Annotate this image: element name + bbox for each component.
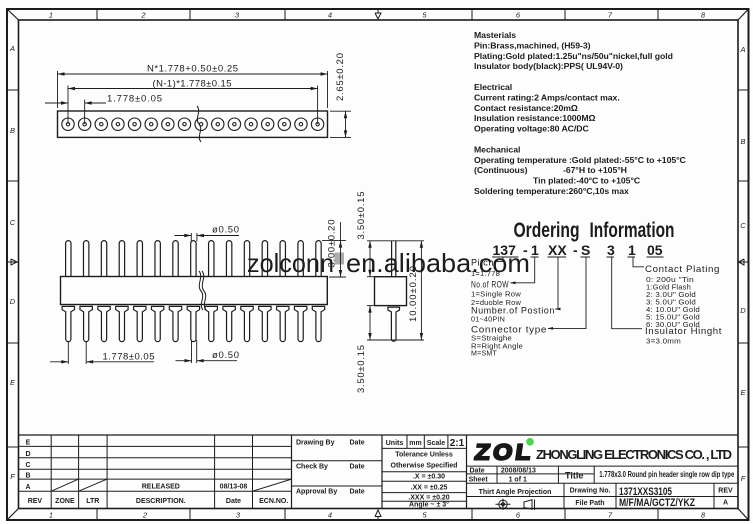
svg-text:2: 2 [142,511,148,520]
svg-text:2.65±0.20: 2.65±0.20 [335,53,346,101]
svg-text:1.778±0.05: 1.778±0.05 [103,352,155,363]
svg-text:3.50±0.15: 3.50±0.15 [356,345,367,393]
svg-text:Date: Date [350,489,365,496]
svg-text:A: A [9,44,15,53]
svg-text:B: B [10,126,15,135]
svg-text:3=3.0mm: 3=3.0mm [646,337,681,346]
svg-text:Tolerance Unless: Tolerance Unless [395,452,453,459]
svg-text:ø0.50: ø0.50 [212,225,239,236]
svg-text:1: 1 [49,511,53,520]
svg-text:1.778x3.0 Round pin header sin: 1.778x3.0 Round pin header single row di… [599,470,734,479]
svg-text:Operating temperature :Gold pl: Operating temperature :Gold plated:-55°C… [474,155,687,165]
svg-text:.X = ±0.30: .X = ±0.30 [413,474,445,481]
svg-text:-67°H to +105°H: -67°H to +105°H [563,165,627,175]
svg-text:(Continuous): (Continuous) [474,165,528,175]
svg-text:XX: XX [548,242,567,258]
svg-text:4: 4 [328,11,332,20]
svg-text:C: C [740,221,746,230]
svg-text:3.50±0.15: 3.50±0.15 [356,192,367,240]
svg-text:Electrical: Electrical [474,82,512,92]
svg-text:ZHONGLING ELECTRONICS CO. , LT: ZHONGLING ELECTRONICS CO. , LTD [536,447,732,462]
svg-text:Approval By: Approval By [296,489,337,496]
svg-text:ZONE: ZONE [55,498,75,505]
svg-text:File Path: File Path [575,500,604,507]
svg-text:Pitch: Pitch [471,258,494,269]
svg-text:.XXX = ±0.20: .XXX = ±0.20 [408,494,450,501]
svg-text:1=1.778: 1=1.778 [471,269,500,278]
svg-text:Date: Date [350,464,365,471]
svg-text:Ordering: Ordering [514,219,580,242]
svg-text:Current rating:2 Amps/contact: Current rating:2 Amps/contact max. [474,92,620,102]
svg-text:C: C [25,462,30,469]
svg-text:1.778±0.05: 1.778±0.05 [107,94,162,105]
svg-text:Check By: Check By [296,464,328,471]
svg-text:E: E [26,440,31,447]
svg-text:F: F [10,472,15,481]
svg-text:Contact Plating: Contact Plating [645,264,720,275]
svg-text:Date: Date [470,468,485,475]
svg-text:A: A [25,484,30,491]
svg-text:2:1: 2:1 [450,438,465,449]
svg-text:1: 1 [628,242,636,258]
svg-text:F: F [741,474,746,483]
svg-text:Masterials: Masterials [474,30,516,40]
svg-text:D: D [25,451,30,458]
svg-text:C: C [10,218,16,227]
svg-text:Operating voltage:80 AC/DC: Operating voltage:80 AC/DC [474,124,589,134]
svg-text:B: B [25,473,30,480]
svg-text:Thirt Angle Projection: Thirt Angle Projection [479,489,552,496]
svg-text:N*1.778+0.50±0.25: N*1.778+0.50±0.25 [147,64,238,75]
svg-text:M/F/MA/GCTZ/YKZ: M/F/MA/GCTZ/YKZ [619,497,695,509]
svg-text:Plating:Gold plated:1.25u"ns/5: Plating:Gold plated:1.25u"ns/50u"nickel,… [474,51,673,61]
svg-text:S: S [581,242,590,258]
svg-text:Soldering temperature:260°C,10: Soldering temperature:260°C,10s max [474,186,629,196]
svg-text:Scale: Scale [427,440,445,447]
svg-text:4: 4 [328,511,332,520]
svg-text:Title: Title [565,471,583,481]
svg-text:ECN.NO.: ECN.NO. [259,498,288,505]
svg-text:3: 3 [607,242,615,258]
svg-text:Drawing By: Drawing By [296,440,335,447]
svg-text:01~40PIN: 01~40PIN [471,315,505,324]
svg-text:A: A [739,45,745,54]
svg-text:05: 05 [647,242,663,258]
svg-text:REV: REV [28,498,43,505]
svg-text:.XX = ±0.25: .XX = ±0.25 [411,485,448,492]
svg-text:ZOL: ZOL [473,440,535,465]
svg-text:Angle ~ ± 3°: Angle ~ ± 3° [409,501,449,509]
svg-text:1: 1 [531,242,539,258]
svg-text:1: 1 [49,11,53,20]
svg-text:Insulator body(black):PPS( UL9: Insulator body(black):PPS( UL94V-0) [474,61,623,71]
svg-text:Pin:Brass,machined, (H59-3): Pin:Brass,machined, (H59-3) [474,40,591,50]
svg-text:Mechanical: Mechanical [474,144,520,154]
svg-text:LTR: LTR [86,498,99,505]
svg-text:D: D [10,297,16,306]
svg-text:A: A [723,500,728,507]
svg-text:(N-1)*1.778±0.15: (N-1)*1.778±0.15 [153,79,232,90]
svg-text:08/13-08: 08/13-08 [220,484,248,491]
svg-text:Tin plated:-40°C to +105°C: Tin plated:-40°C to +105°C [533,176,641,186]
svg-text:D: D [740,306,746,315]
svg-text:Contact resistance:20mΩ: Contact resistance:20mΩ [474,103,578,113]
svg-text:mm: mm [409,440,421,447]
svg-text:3.00±0.20: 3.00±0.20 [327,220,338,268]
svg-text:Units: Units [386,440,404,447]
svg-text:M=SMT: M=SMT [471,349,497,358]
svg-text:Otherwise Specified: Otherwise Specified [391,462,458,469]
svg-text:DESCRIPTION.: DESCRIPTION. [136,498,186,505]
svg-text:Drawing No.: Drawing No. [570,488,611,495]
svg-text:Sheet: Sheet [469,477,489,484]
svg-text:2: 2 [140,11,146,20]
svg-text:REV: REV [718,488,733,495]
svg-text:RELEASED: RELEASED [142,484,180,491]
svg-text:Insulation resistance:1000MΩ: Insulation resistance:1000MΩ [474,113,596,123]
svg-text:1 of 1: 1 of 1 [509,477,527,484]
svg-text:B: B [740,137,745,146]
svg-text:Date: Date [350,440,365,447]
svg-text:2008/08/13: 2008/08/13 [501,468,536,475]
svg-text:Insulator Hinght: Insulator Hinght [645,326,722,337]
svg-text:-: - [523,242,528,258]
svg-text:-: - [573,242,578,258]
svg-text:ø0.50: ø0.50 [212,350,239,361]
svg-text:10.00±0.20: 10.00±0.20 [408,266,419,322]
svg-text:Date: Date [226,498,241,505]
svg-text:Information: Information [590,219,675,242]
svg-text:137: 137 [493,242,517,258]
